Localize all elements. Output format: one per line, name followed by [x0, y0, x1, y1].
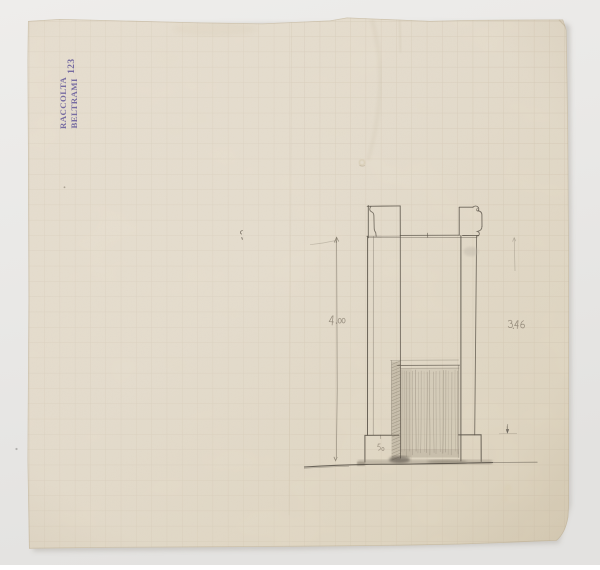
svg-text:BELTRAMI: BELTRAMI	[69, 78, 79, 128]
svg-text:RACCOLTA: RACCOLTA	[58, 77, 68, 129]
svg-text:123: 123	[67, 59, 77, 74]
